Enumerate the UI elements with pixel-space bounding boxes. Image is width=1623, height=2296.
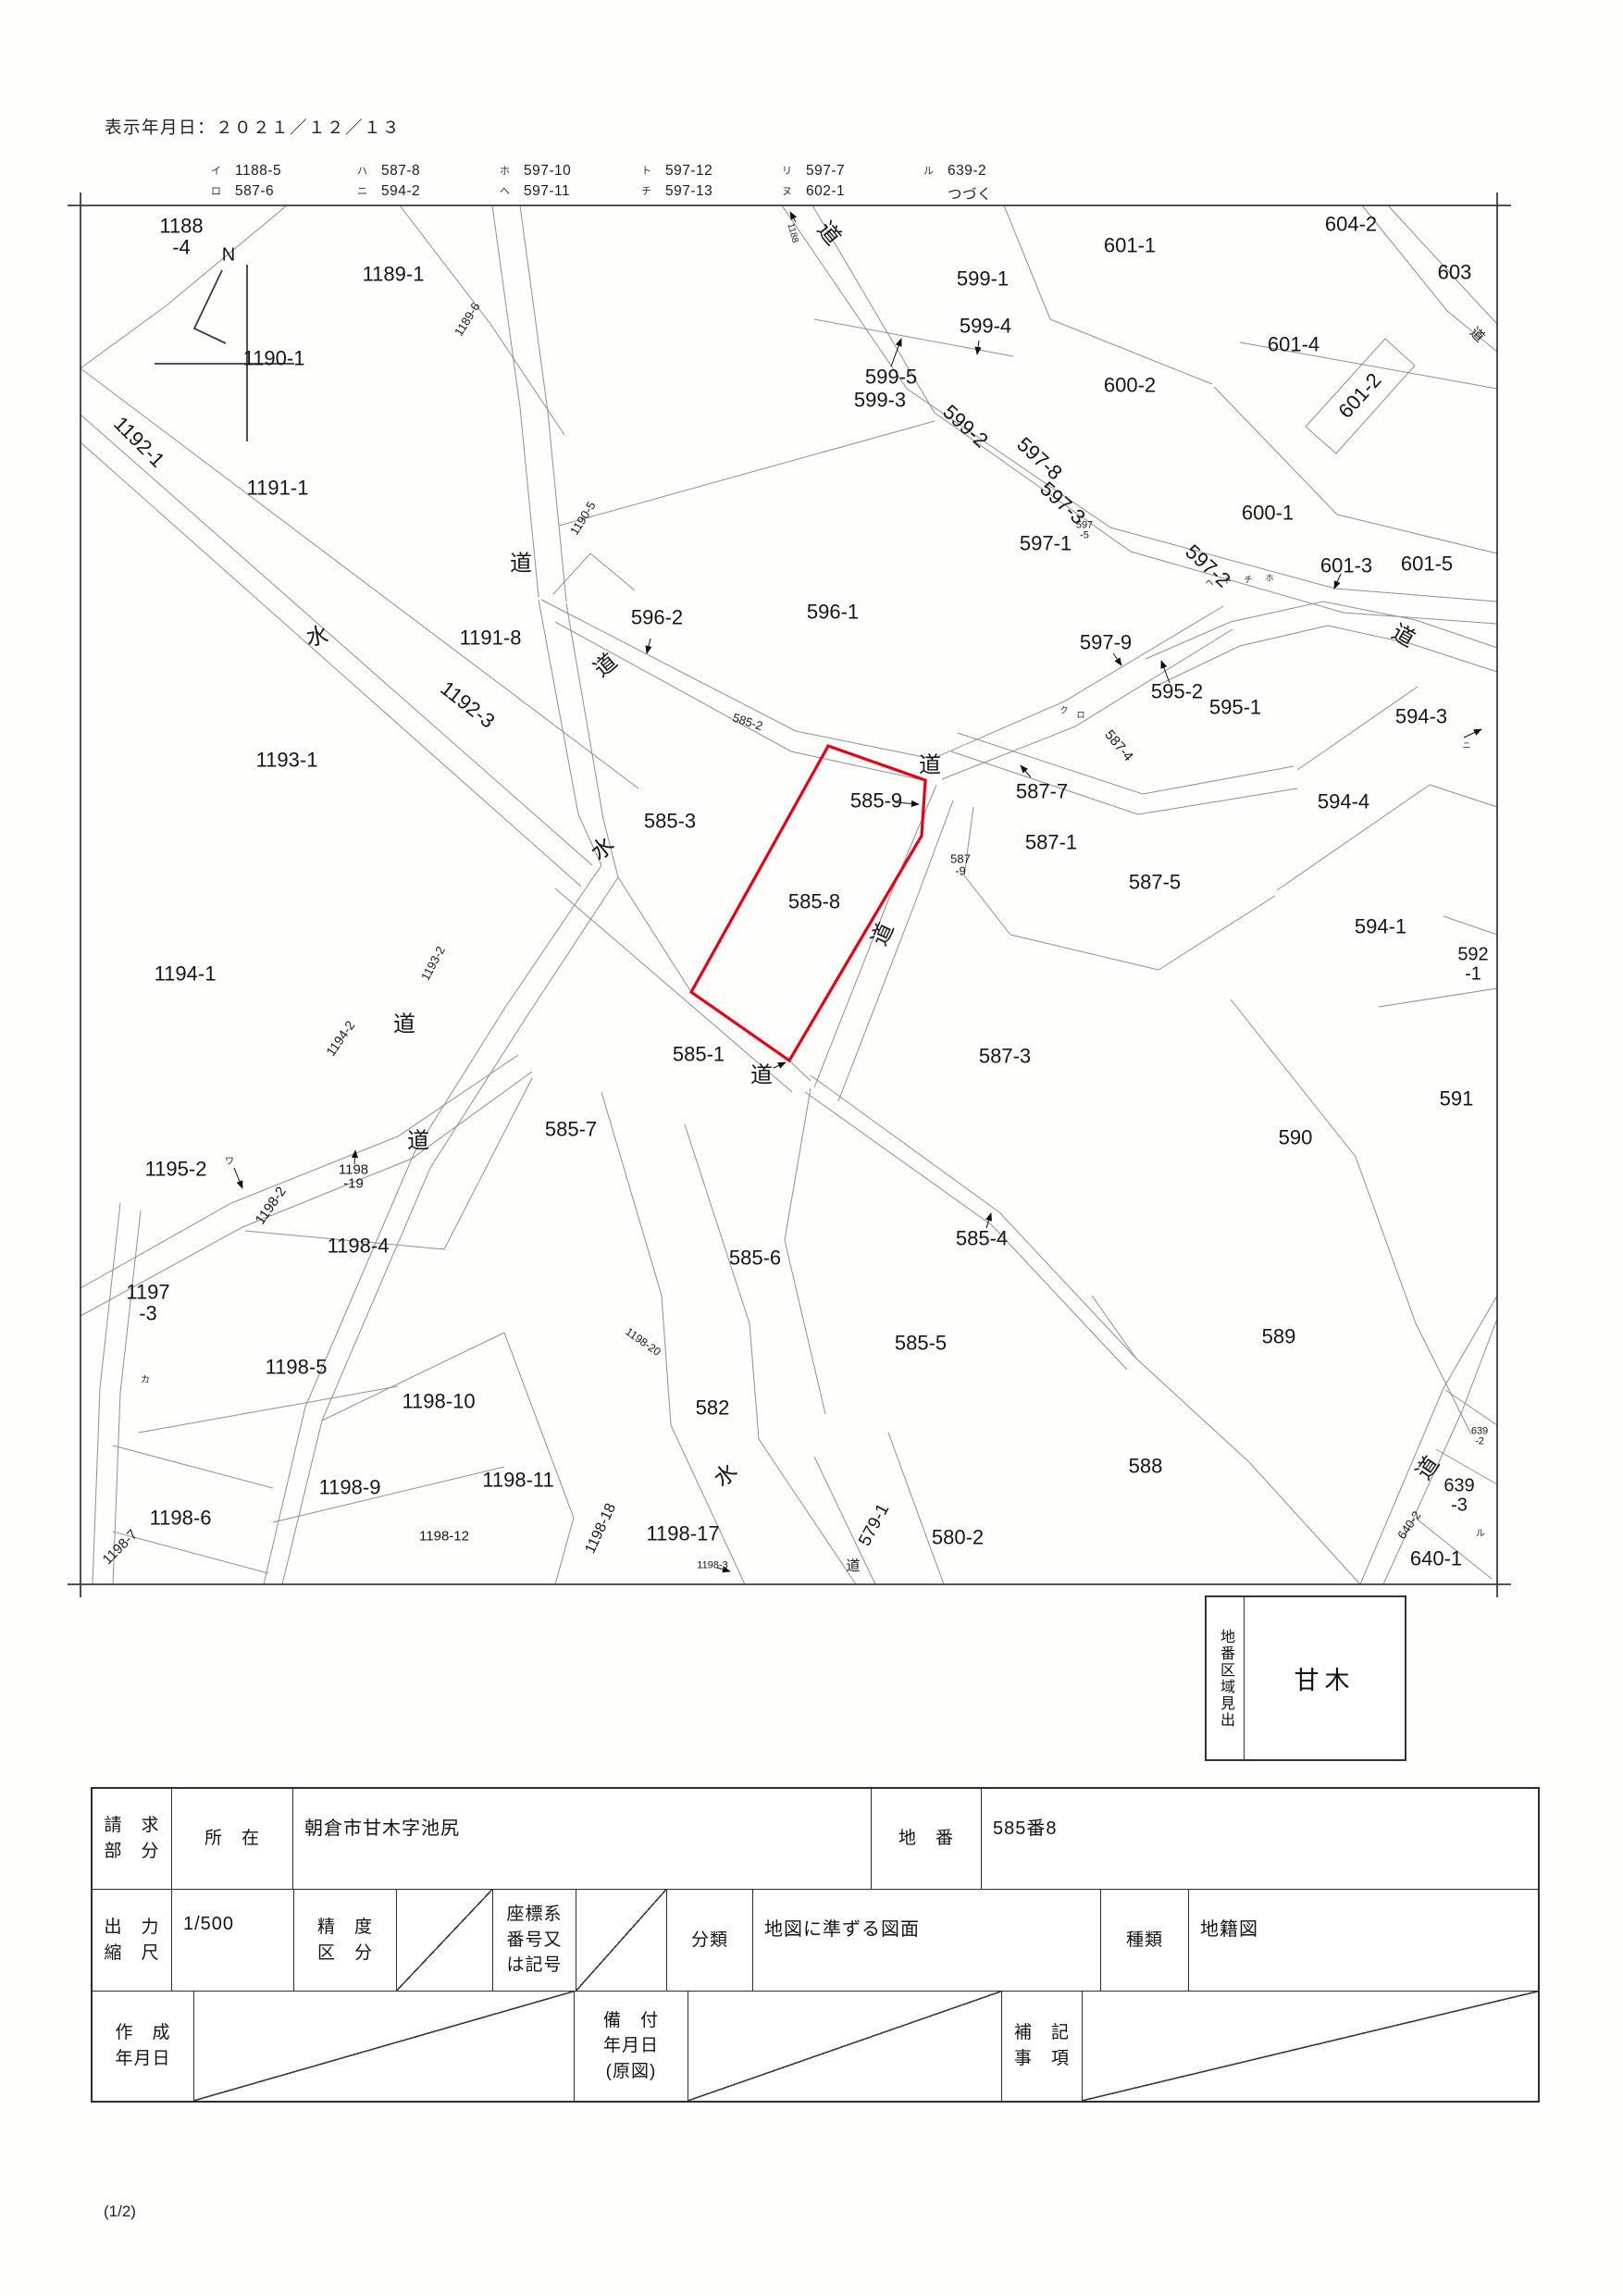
cell-hoki-value [1083,1992,1538,2101]
parcel-label: 592 -1 [1457,945,1488,983]
parcel-label: 599-1 [957,269,1009,291]
water-label: 水 [304,625,330,652]
parcel-label: 601-4 [1268,335,1319,356]
parcel-label: 1198-12 [419,1529,469,1543]
parcel-boundary-line [812,205,1497,624]
cell-shukushaku-value: 1/500 [172,1890,294,1991]
parcel-label: 599-5 [865,367,917,389]
parcel-boundary-line [273,1467,504,1522]
point-mark-label: ル [1476,1530,1485,1539]
parcel-boundary-line [601,1092,745,1584]
parcel-boundary-line [81,368,638,788]
parcel-label: 582 [696,1398,730,1420]
parcel-label: 639 -3 [1443,1476,1474,1514]
parcel-boundary-line [1430,785,1497,807]
leader-arrow [234,1168,242,1188]
parcel-label: 585-9 [850,791,902,813]
parcel-boundary-line [590,553,635,590]
parcel-boundary-line [400,205,564,435]
parcel-boundary-line [245,1078,532,1249]
parcel-label: 640-1 [1410,1549,1462,1570]
point-mark-label: ロ [1076,711,1084,719]
parcel-label: 601-3 [1320,556,1372,577]
parcel-label: 587 -9 [950,853,971,878]
cadastral-map-page: 表示年月日：２０２１／１２／１３ イ1188-5ロ587-6ハ587-8ニ594… [0,0,1623,2296]
cell-seido-value [397,1890,493,1991]
parcel-label: 587-5 [1129,873,1181,894]
parcel-boundary-line [1214,387,1337,515]
parcel-label: 600-1 [1242,503,1294,525]
parcel-label: 599-4 [960,316,1011,338]
point-mark-label: ニ [1462,741,1470,750]
parcel-boundary-line [1379,988,1497,1007]
parcel-label: 590 [1279,1128,1313,1149]
parcel-label: 594-4 [1318,792,1369,813]
cell-sakusei-value [194,1992,575,2101]
parcel-label: 585-5 [895,1334,947,1355]
road-label: 道 [510,553,532,577]
parcel-label: 597-9 [1080,633,1132,654]
point-mark-label: ワ [225,1158,234,1167]
parcel-label: 580-2 [932,1528,984,1549]
parcel-boundary-line [1337,515,1497,553]
parcel-boundary-line [1004,205,1212,384]
parcel-label: 589 [1262,1327,1296,1348]
parcel-label: 585-7 [545,1120,597,1141]
parcel-boundary-line [1231,999,1471,1434]
parcel-label: 596-1 [807,602,859,624]
road-label: 道 [919,755,941,778]
parcel-label: 1197 -3 [126,1282,169,1323]
parcel-label: 585-8 [788,892,840,913]
leader-arrow [986,1213,991,1228]
parcel-label: 591 [1440,1089,1474,1111]
parcel-boundary-line [553,553,590,594]
parcel-label: 1191-1 [247,478,309,500]
parcel-boundary-line [1158,626,1497,685]
parcel-boundary-line [541,600,933,759]
cell-bunrui-label: 分類 [667,1890,753,1991]
page-number: (1/2) [104,2203,136,2221]
parcel-boundary-line [1297,687,1418,770]
cell-shukushaku-label: 出 力 縮 尺 [93,1890,172,1991]
leader-arrow [977,341,979,354]
parcel-label: 1198-4 [328,1236,390,1258]
parcel-label: 601-5 [1401,554,1453,576]
parcel-boundary-line [964,807,1010,935]
table-row: 作 成 年月日備 付 年月日 (原図)補 記 事 項 [93,1992,1538,2101]
parcel-label: 588 [1129,1457,1163,1478]
parcel-label: 594-3 [1395,707,1447,728]
parcel-boundary-line [1158,896,1275,970]
parcel-boundary-line [139,1386,398,1433]
parcel-label: 1198-3 [697,1560,727,1570]
parcel-label: 600-2 [1104,376,1156,397]
cell-shurui-label: 種類 [1101,1890,1189,1991]
parcel-boundary-line [539,600,601,865]
parcel-label: 601-1 [1104,236,1156,257]
parcel-boundary-line [504,1333,574,1584]
leader-arrow [790,212,796,222]
leader-arrow [1113,653,1121,665]
parcel-label: 604-2 [1325,215,1377,236]
point-mark-label: ヘ [1205,578,1213,587]
parcel-label: 1198-11 [482,1471,553,1492]
map-frame-line [194,270,226,343]
parcel-label: 585-4 [956,1229,1008,1250]
cell-bunrui-value: 地図に準ずる図面 [753,1890,1101,1991]
parcel-label: 596-2 [631,608,683,629]
index-box-title: 地番区域見出 [1207,1597,1245,1759]
cell-chiban-label: 地 番 [872,1789,982,1889]
leader-arrow [647,639,650,653]
table-row: 出 力 縮 尺1/500精 度 区 分座標系 番号又 は記号分類地図に準ずる図面… [93,1890,1538,1992]
parcel-label: 595-1 [1209,698,1261,719]
parcel-label: 639 -2 [1471,1427,1488,1448]
parcel-label: 585-1 [673,1045,725,1066]
parcel-boundary-line [559,421,935,526]
cell-shozai-value: 朝倉市甘木字池尻 [293,1789,872,1889]
parcel-label: 1188 -4 [159,216,203,257]
leader-arrow [1464,729,1481,738]
cell-zahyokei-label: 座標系 番号又 は記号 [493,1890,576,1991]
parcel-label: 594-1 [1355,917,1406,938]
parcel-boundary-line [685,1124,856,1584]
parcel-label: 1198 -19 [339,1163,368,1192]
parcel-boundary-line [618,877,691,992]
road-label: 道 [407,1131,429,1154]
parcel-label: 1198-10 [402,1392,475,1413]
parcel-label: 1198-5 [266,1358,328,1379]
parcel-label: 587-1 [1025,833,1077,854]
cell-sakusei-label: 作 成 年月日 [93,1992,194,2101]
cell-shurui-value: 地籍図 [1189,1890,1538,1991]
cell-seikyu-bubun: 請 求 部 分 [93,1789,172,1889]
cell-zahyokei-value [576,1890,667,1991]
parcel-boundary-line [113,1446,273,1488]
parcel-boundary-line [838,800,953,1101]
cell-sonae-label: 備 付 年月日 (原図) [575,1992,688,2101]
parcel-label: 1190-1 [243,349,305,370]
table-row: 請 求 部 分所 在朝倉市甘木字池尻地 番585番8 [93,1789,1538,1890]
index-box-value: 甘木 [1245,1597,1405,1759]
parcel-boundary-line [492,205,539,597]
parcel-label: 1191-8 [460,628,522,650]
cell-hoki-label: 補 記 事 項 [1002,1992,1083,2101]
parcel-boundary-line [1443,916,1497,935]
parcel-label: 587-7 [1016,782,1068,803]
parcel-boundary-line [785,1088,825,1414]
parcel-boundary-line [1010,935,1158,970]
leader-arrow [891,339,901,366]
parcel-label: 603 [1438,263,1472,284]
parcel-label: 599-3 [854,391,906,412]
point-mark-label: ト [1223,577,1232,585]
parcel-label: 585-6 [729,1248,781,1270]
road-label: 道 [846,1558,860,1572]
point-mark-label: ク [1059,706,1068,714]
leader-arrow [774,1062,786,1068]
parcel-label: 1194-1 [155,964,217,986]
parcel-label: N [222,246,235,266]
road-label: 道 [393,1014,415,1037]
road-label: 道 [750,1065,773,1088]
parcel-label: 1198-17 [646,1524,719,1545]
parcel-label: 595-2 [1151,682,1203,703]
point-mark-label: ホ [1265,574,1273,582]
cell-seido-label: 精 度 区 分 [294,1890,397,1991]
parcel-label: 1198-6 [150,1508,212,1530]
cell-sonae-value [688,1992,1002,2101]
parcel-boundary-line [789,1061,811,1081]
parcel-label: 587-3 [979,1047,1031,1068]
parcel-boundary-line [1092,1296,1360,1584]
cell-chiban-value: 585番8 [982,1789,1538,1889]
parcel-label: 585-3 [644,812,696,833]
point-mark-label: チ [1244,576,1252,584]
parcel-boundary-line [93,1203,120,1584]
parcel-boundary-line [555,622,927,781]
parcel-boundary-line [811,1075,1136,1359]
parcel-label: 1195-2 [145,1160,207,1181]
request-info-table: 請 求 部 分所 在朝倉市甘木字池尻地 番585番8出 力 縮 尺1/500精 … [91,1787,1540,2103]
parcel-label: 597-1 [1020,534,1072,555]
parcel-label: 1189-1 [363,265,425,286]
parcel-boundary-line [81,442,581,887]
parcel-label: 1198-9 [319,1478,381,1499]
parcel-label: 1193-1 [256,751,318,772]
parcel-boundary-line [1445,1390,1497,1425]
point-mark-label: カ [141,1376,150,1385]
chiban-area-index-box: 地番区域見出 甘木 [1205,1595,1406,1761]
parcel-boundary-line [888,1433,944,1584]
cell-shozai-label: 所 在 [172,1789,293,1889]
